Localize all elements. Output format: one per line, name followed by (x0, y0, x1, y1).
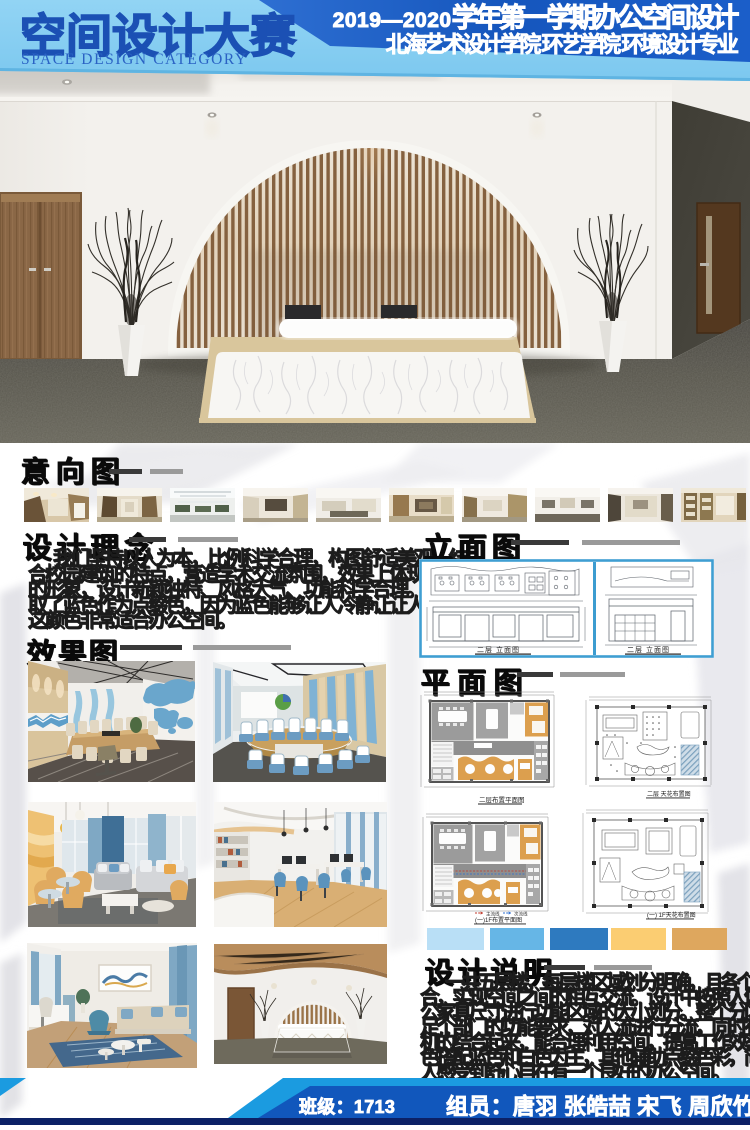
svg-text:班级：1713: 班级：1713 (299, 1096, 395, 1117)
svg-text:组员：唐羽 张皓喆 宋飞 周欣竹: 组员：唐羽 张皓喆 宋飞 周欣竹 (446, 1094, 750, 1119)
svg-text:次流线: 次流线 (514, 910, 528, 917)
svg-text:SPACE DESIGN CATEGORY: SPACE DESIGN CATEGORY (21, 51, 248, 68)
svg-text:(一)1F布置平面图: (一)1F布置平面图 (475, 916, 522, 924)
svg-text:(一) 1F天花布置图: (一) 1F天花布置图 (647, 911, 696, 919)
svg-text:二层布置平面图: 二层布置平面图 (479, 795, 525, 804)
svg-text:北海艺术设计学院 环艺学院 环境设计专业: 北海艺术设计学院 环艺学院 环境设计专业 (386, 32, 739, 57)
svg-text:二层 立面图: 二层 立面图 (627, 645, 670, 654)
svg-text:主流线: 主流线 (486, 910, 500, 917)
svg-text:二层 天花布置图: 二层 天花布置图 (647, 790, 691, 798)
svg-text:二层 立面图: 二层 立面图 (477, 645, 520, 654)
